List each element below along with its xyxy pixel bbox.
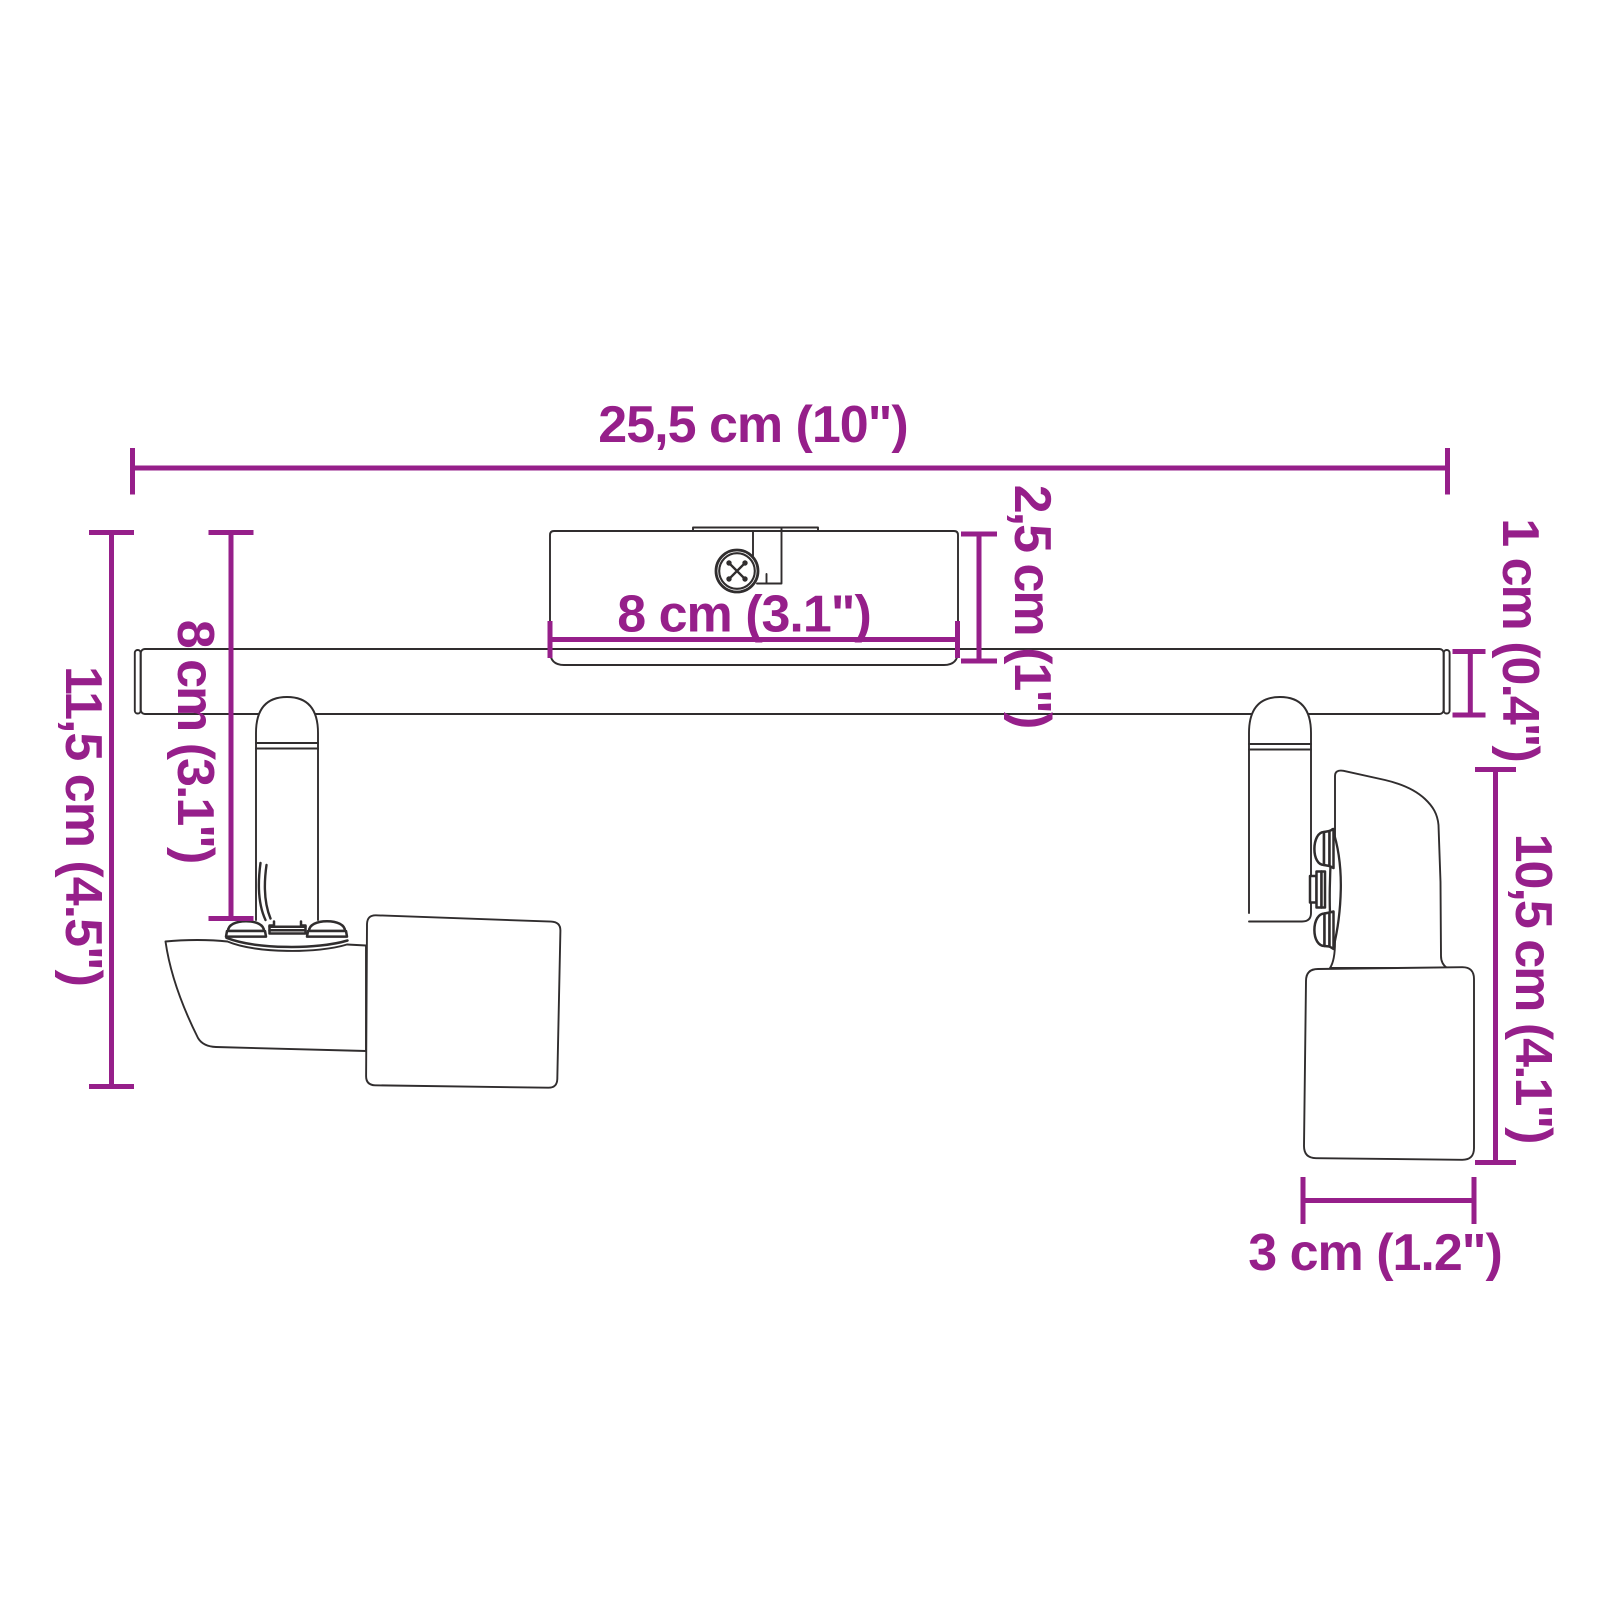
svg-text:3 cm (1.2"): 3 cm (1.2") (1248, 1224, 1502, 1282)
svg-text:8 cm (3.1"): 8 cm (3.1") (166, 620, 224, 863)
svg-text:10,5 cm (4.1"): 10,5 cm (4.1") (1504, 834, 1562, 1143)
svg-text:2,5 cm (1"): 2,5 cm (1") (1003, 485, 1061, 728)
svg-text:25,5 cm (10"): 25,5 cm (10") (598, 396, 907, 454)
svg-text:11,5 cm (4.5"): 11,5 cm (4.5") (54, 666, 112, 986)
svg-text:8 cm (3.1"): 8 cm (3.1") (617, 586, 871, 644)
svg-text:1 cm (0.4"): 1 cm (0.4") (1491, 518, 1549, 761)
